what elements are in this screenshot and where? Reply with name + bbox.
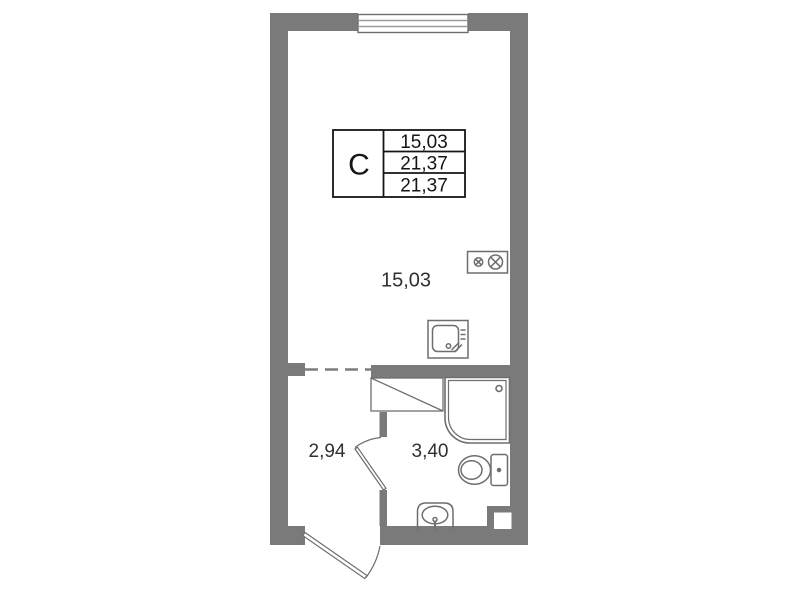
niche-diagonal — [371, 378, 443, 411]
appliance-niche — [371, 378, 443, 411]
wall-bottom-left-segment — [270, 526, 305, 545]
entrance-door-leaf — [303, 533, 367, 579]
wall-stub-hallway — [288, 363, 305, 376]
info-table-text: С 15,03 21,37 21,37 — [348, 132, 448, 197]
table-value-living: 15,03 — [400, 132, 448, 153]
washbasin-tap-dot — [433, 518, 437, 522]
washbasin-icon — [418, 503, 454, 530]
bathroom-area-label: 3,40 — [412, 441, 449, 462]
main-room-area-label: 15,03 — [381, 270, 431, 292]
window — [358, 15, 468, 33]
stove-icon — [468, 252, 508, 274]
toilet-bowl-outer — [459, 456, 491, 485]
entrance-door-swing-arc — [366, 546, 380, 578]
table-value-total-reduced: 21,37 — [400, 176, 448, 197]
wall-left — [270, 13, 288, 545]
stove-body — [468, 252, 508, 274]
kitchen-sink-icon — [428, 321, 468, 359]
bathroom-door — [355, 438, 386, 491]
floor-plan-canvas: С 15,03 21,37 21,37 15,03 2,94 3,40 — [0, 0, 799, 600]
wall-stub-bathdoor-top — [380, 412, 388, 437]
toilet-icon — [459, 455, 508, 486]
hallway-area-label: 2,94 — [309, 441, 346, 462]
wall-top-left-segment — [270, 13, 358, 31]
shower-drain — [496, 386, 502, 392]
bathroom-door-swing-arc — [355, 438, 381, 448]
entrance-door — [303, 533, 380, 579]
wall-stub-bathdoor-bottom — [380, 490, 388, 526]
toilet-bowl-inner — [461, 461, 482, 480]
bathroom-door-leaf — [355, 447, 386, 490]
wall-partition-bathroom — [371, 365, 510, 378]
apartment-type-label: С — [348, 149, 370, 182]
window-frame — [358, 15, 468, 33]
shower-inner — [449, 381, 507, 440]
table-value-total: 21,37 — [400, 154, 448, 175]
vent-duct-hole — [494, 513, 512, 530]
toilet-tank-button — [498, 469, 501, 472]
wall-right — [510, 13, 528, 545]
shower-cabin-icon — [445, 378, 510, 444]
